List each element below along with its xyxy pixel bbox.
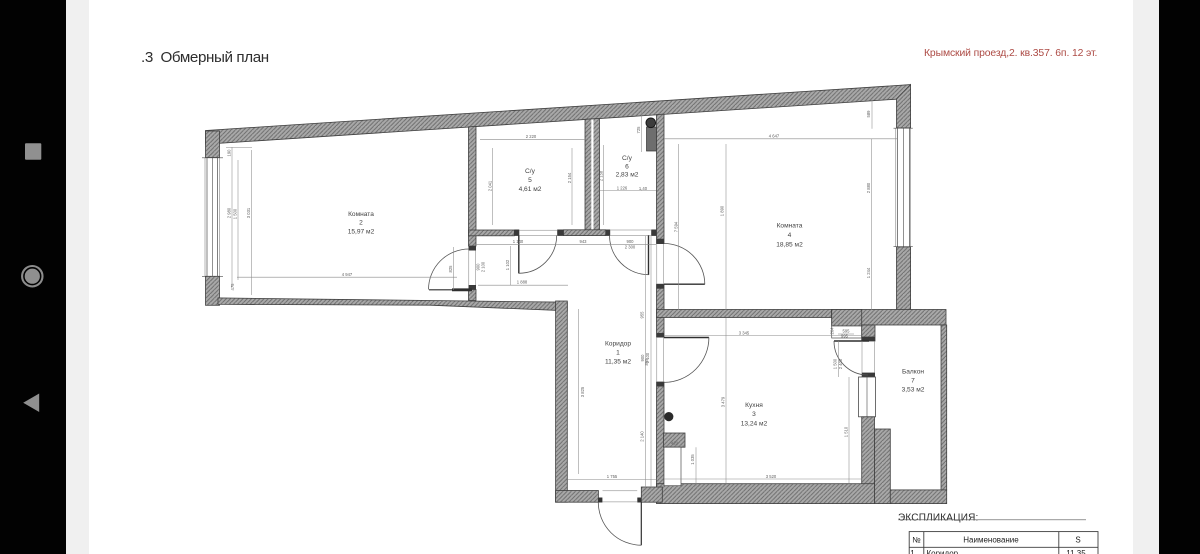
svg-text:3 345: 3 345 — [739, 330, 750, 335]
svg-text:420: 420 — [671, 441, 679, 446]
svg-text:1 226: 1 226 — [617, 185, 628, 190]
svg-text:7: 7 — [911, 378, 915, 385]
svg-text:11,35 м2: 11,35 м2 — [605, 358, 631, 365]
svg-text:Наименование: Наименование — [963, 535, 1019, 544]
svg-text:Крымский проезд,2. кв.357. 6п.: Крымский проезд,2. кв.357. 6п. 12 эт. — [924, 48, 1097, 59]
svg-text:Комната: Комната — [777, 223, 803, 230]
svg-text:ЭКСПЛИКАЦИЯ:: ЭКСПЛИКАЦИЯ: — [898, 513, 979, 524]
svg-text:2: 2 — [359, 220, 363, 227]
svg-text:2 980: 2 980 — [227, 207, 232, 218]
svg-text:.3 Обмерный план: .3 Обмерный план — [141, 49, 269, 66]
svg-text:1: 1 — [616, 349, 620, 356]
svg-text:18,85 м2: 18,85 м2 — [776, 242, 803, 249]
svg-text:3 031: 3 031 — [246, 207, 251, 218]
svg-text:Коридор: Коридор — [927, 549, 959, 554]
svg-text:2 140: 2 140 — [640, 431, 645, 442]
svg-text:Коридор: Коридор — [605, 341, 631, 348]
svg-text:13,24 м2: 13,24 м2 — [741, 421, 768, 428]
svg-text:2 400: 2 400 — [838, 358, 843, 369]
svg-text:4 647: 4 647 — [769, 134, 780, 139]
svg-text:2 100: 2 100 — [481, 261, 486, 272]
svg-text:900: 900 — [627, 239, 635, 244]
svg-text:1 500: 1 500 — [833, 358, 838, 369]
svg-text:190: 190 — [227, 149, 232, 157]
svg-text:3 520: 3 520 — [766, 474, 777, 479]
svg-text:4,61 м2: 4,61 м2 — [519, 186, 542, 193]
svg-text:2 154: 2 154 — [567, 172, 572, 183]
svg-text:2 880: 2 880 — [866, 182, 871, 193]
svg-text:1 500: 1 500 — [233, 208, 238, 219]
svg-text:264: 264 — [830, 327, 835, 335]
svg-text:1 755: 1 755 — [607, 474, 618, 479]
svg-text:1 244: 1 244 — [866, 267, 871, 278]
svg-text:Кухня: Кухня — [745, 402, 763, 409]
svg-text:С/у: С/у — [525, 168, 536, 175]
svg-text:1: 1 — [910, 549, 915, 554]
svg-text:1 102: 1 102 — [505, 259, 510, 270]
svg-text:15,97 м2: 15,97 м2 — [348, 229, 375, 236]
svg-text:2 041: 2 041 — [488, 180, 493, 191]
svg-text:3 825: 3 825 — [580, 386, 585, 397]
svg-text:2 220: 2 220 — [526, 134, 537, 139]
svg-text:5: 5 — [528, 177, 532, 184]
svg-text:589: 589 — [866, 110, 871, 118]
svg-text:1 890: 1 890 — [720, 205, 725, 216]
svg-text:1 510: 1 510 — [844, 426, 849, 437]
svg-text:1 035: 1 035 — [690, 454, 695, 465]
svg-text:6: 6 — [625, 164, 629, 171]
svg-text:2,83 м2: 2,83 м2 — [616, 172, 639, 179]
svg-text:725: 725 — [636, 126, 641, 134]
svg-text:1 888: 1 888 — [517, 280, 528, 285]
svg-text:С/у: С/у — [622, 155, 633, 162]
svg-text:4: 4 — [788, 232, 792, 239]
svg-text:Балкон: Балкон — [902, 369, 924, 376]
svg-text:1 140: 1 140 — [513, 239, 524, 244]
svg-text:4 947: 4 947 — [342, 272, 353, 277]
svg-text:855: 855 — [644, 358, 649, 366]
svg-text:11,35: 11,35 — [1066, 549, 1086, 554]
svg-text:1,40: 1,40 — [639, 186, 648, 191]
svg-text:Комната: Комната — [348, 211, 374, 218]
svg-text:3: 3 — [752, 411, 756, 418]
svg-text:S: S — [1075, 535, 1080, 544]
svg-text:2 300: 2 300 — [625, 245, 636, 250]
svg-text:2 158: 2 158 — [599, 170, 604, 181]
svg-text:7 594: 7 594 — [674, 221, 679, 232]
svg-text:825: 825 — [448, 265, 453, 273]
svg-text:995: 995 — [841, 334, 849, 339]
svg-text:943: 943 — [580, 239, 588, 244]
svg-text:№: № — [912, 535, 921, 544]
svg-text:3,53 м2: 3,53 м2 — [902, 387, 925, 394]
svg-text:3 479: 3 479 — [720, 396, 725, 407]
svg-text:955: 955 — [640, 311, 645, 319]
svg-text:475: 475 — [230, 283, 235, 291]
